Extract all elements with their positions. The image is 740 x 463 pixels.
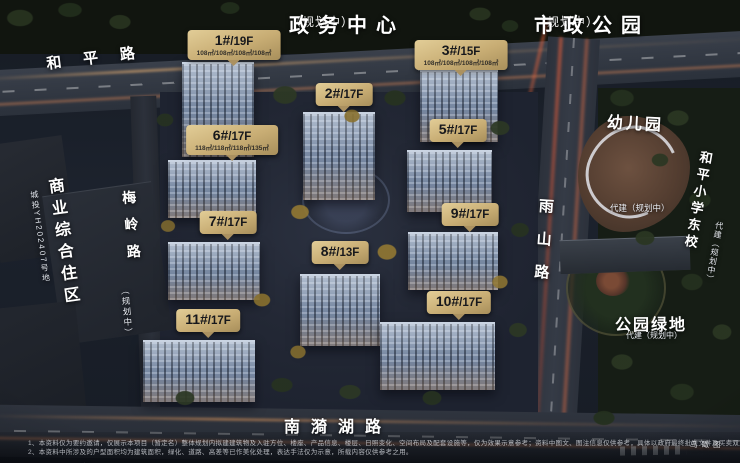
building-label-6: 6#/17F 118㎡/118㎡/118㎡/135㎡ — [186, 125, 278, 155]
residential-tower — [303, 112, 375, 200]
building-floors: /17F — [208, 315, 231, 327]
residential-tower — [408, 232, 498, 290]
kindergarten-note: 代建（规划中） — [610, 202, 670, 214]
residential-tower — [380, 322, 495, 390]
residential-tower — [143, 340, 255, 402]
building-floors: /13F — [336, 247, 359, 259]
building-label-11: 11#/17F — [176, 309, 240, 332]
municipal-park-title: 市政公园（规划中） — [534, 9, 599, 32]
residential-tower — [300, 274, 380, 346]
school-building — [559, 236, 690, 275]
building-label-9: 9#/17F — [442, 203, 499, 226]
disclaimer-line-2: 2、本资料中所涉及的户型面积均为建筑面积，绿化、道路、高差等已作美化处理，表达手… — [28, 446, 413, 456]
building-label-10: 10#/17F — [427, 291, 491, 314]
municipal-park-name: 市政公园 — [534, 9, 650, 38]
building-floors: /17F — [466, 209, 489, 221]
building-floors: /15F — [457, 46, 480, 58]
building-floors: /19F — [230, 36, 253, 48]
aerial-site-plan: 政务中心（规划中） 市政公园（规划中） 和平路 南漪湖路 梅岭路 （规划中） 雨… — [0, 0, 740, 463]
gov-center-title: 政务中心（规划中） — [289, 9, 354, 32]
building-number: 1# — [215, 32, 231, 48]
building-label-7: 7#/17F — [200, 211, 257, 234]
building-number: 6# — [213, 127, 229, 143]
building-number: 11# — [185, 311, 208, 327]
building-label-1: 1#/19F 108㎡/108㎡/108㎡/108㎡ — [188, 30, 281, 60]
aerial-view-caption: 鸟瞰图 — [690, 439, 725, 450]
building-floors: /17F — [459, 297, 482, 309]
commercial-parcel-name: 商业综合住区 — [41, 176, 83, 310]
building-number: 9# — [451, 205, 467, 221]
building-areas: 108㎡/108㎡/108㎡/108㎡ — [197, 50, 272, 57]
building-floors: /17F — [224, 217, 247, 229]
building-number: 7# — [209, 213, 225, 229]
building-number: 2# — [325, 85, 341, 101]
building-number: 10# — [436, 293, 459, 309]
gov-center-name: 政务中心 — [289, 9, 405, 38]
building-label-8: 8#/13F — [312, 241, 369, 264]
residential-tower — [168, 242, 260, 300]
building-label-3: 3#/15F 108㎡/108㎡/108㎡/108㎡ — [415, 40, 508, 70]
kindergarten-label: 幼儿园 — [606, 109, 664, 136]
residential-tower — [168, 160, 256, 218]
building-number: 8# — [321, 243, 337, 259]
park-green-note: 代建（规划中） — [626, 330, 682, 341]
road-label-nanyihu: 南漪湖路 — [284, 413, 392, 437]
building-label-5: 5#/17F — [430, 119, 487, 142]
building-label-2: 2#/17F — [316, 83, 373, 106]
building-floors: /17F — [340, 89, 363, 101]
building-areas: 118㎡/118㎡/118㎡/135㎡ — [195, 145, 269, 152]
building-floors: /17F — [454, 125, 477, 137]
building-number: 3# — [442, 42, 458, 58]
building-floors: /17F — [228, 131, 251, 143]
building-areas: 108㎡/108㎡/108㎡/108㎡ — [424, 60, 499, 67]
building-number: 5# — [439, 121, 455, 137]
